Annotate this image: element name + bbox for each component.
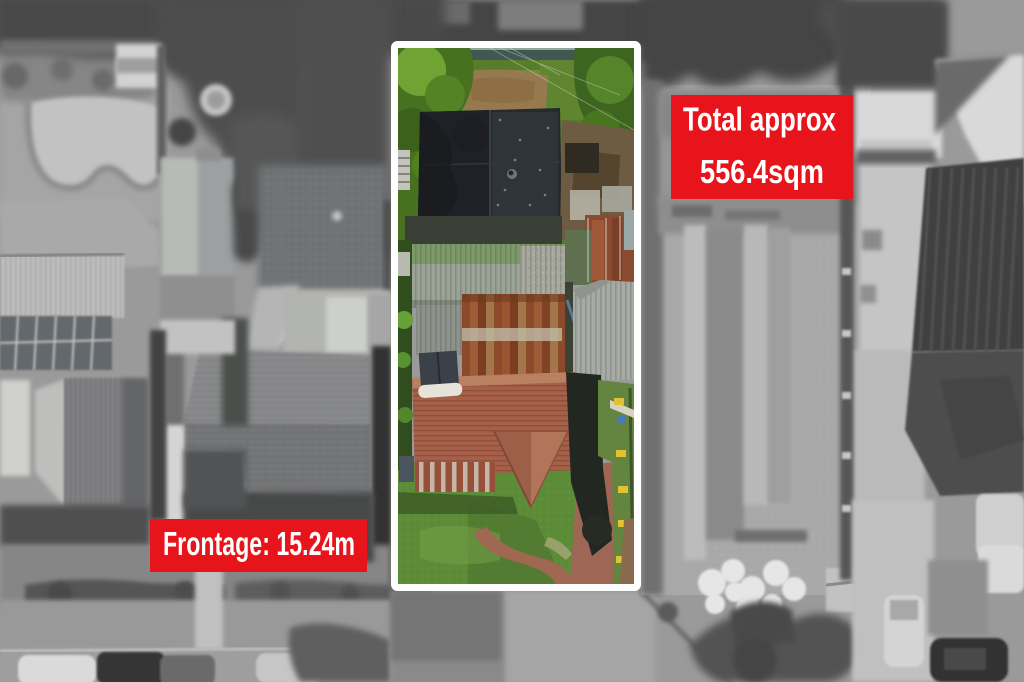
svg-text:Total approx: Total approx [683,101,836,138]
svg-text:Frontage: 15.24m: Frontage: 15.24m [163,525,355,562]
svg-text:556.4sqm: 556.4sqm [700,153,824,190]
